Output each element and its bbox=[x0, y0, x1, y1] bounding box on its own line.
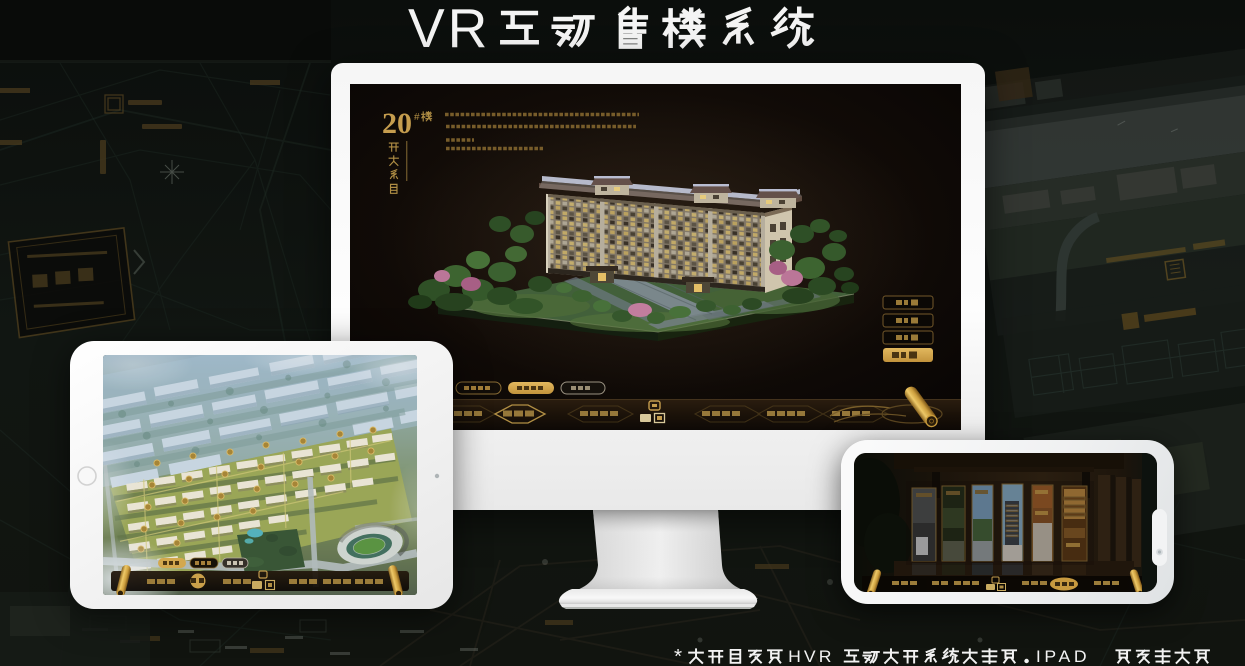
svg-text:VR: VR bbox=[408, 0, 490, 58]
svg-text:#: # bbox=[414, 112, 420, 123]
svg-text:HVR: HVR bbox=[788, 646, 835, 666]
svg-text:IPAD: IPAD bbox=[1036, 646, 1090, 666]
svg-text:20: 20 bbox=[382, 107, 412, 140]
svg-text:*: * bbox=[674, 646, 682, 666]
